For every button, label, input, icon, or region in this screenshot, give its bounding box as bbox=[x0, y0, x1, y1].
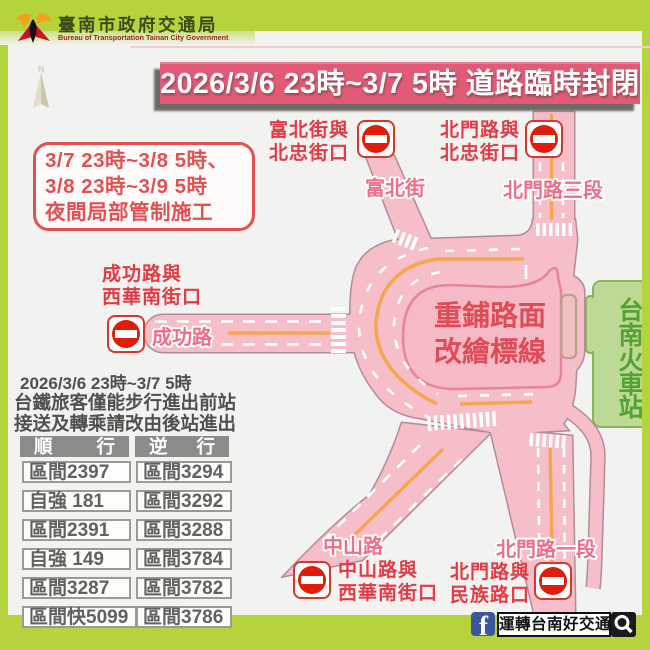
svg-text:台: 台 bbox=[618, 296, 643, 325]
svg-text:N: N bbox=[38, 64, 45, 74]
svg-text:站: 站 bbox=[618, 394, 643, 422]
svg-text:南: 南 bbox=[618, 322, 643, 350]
